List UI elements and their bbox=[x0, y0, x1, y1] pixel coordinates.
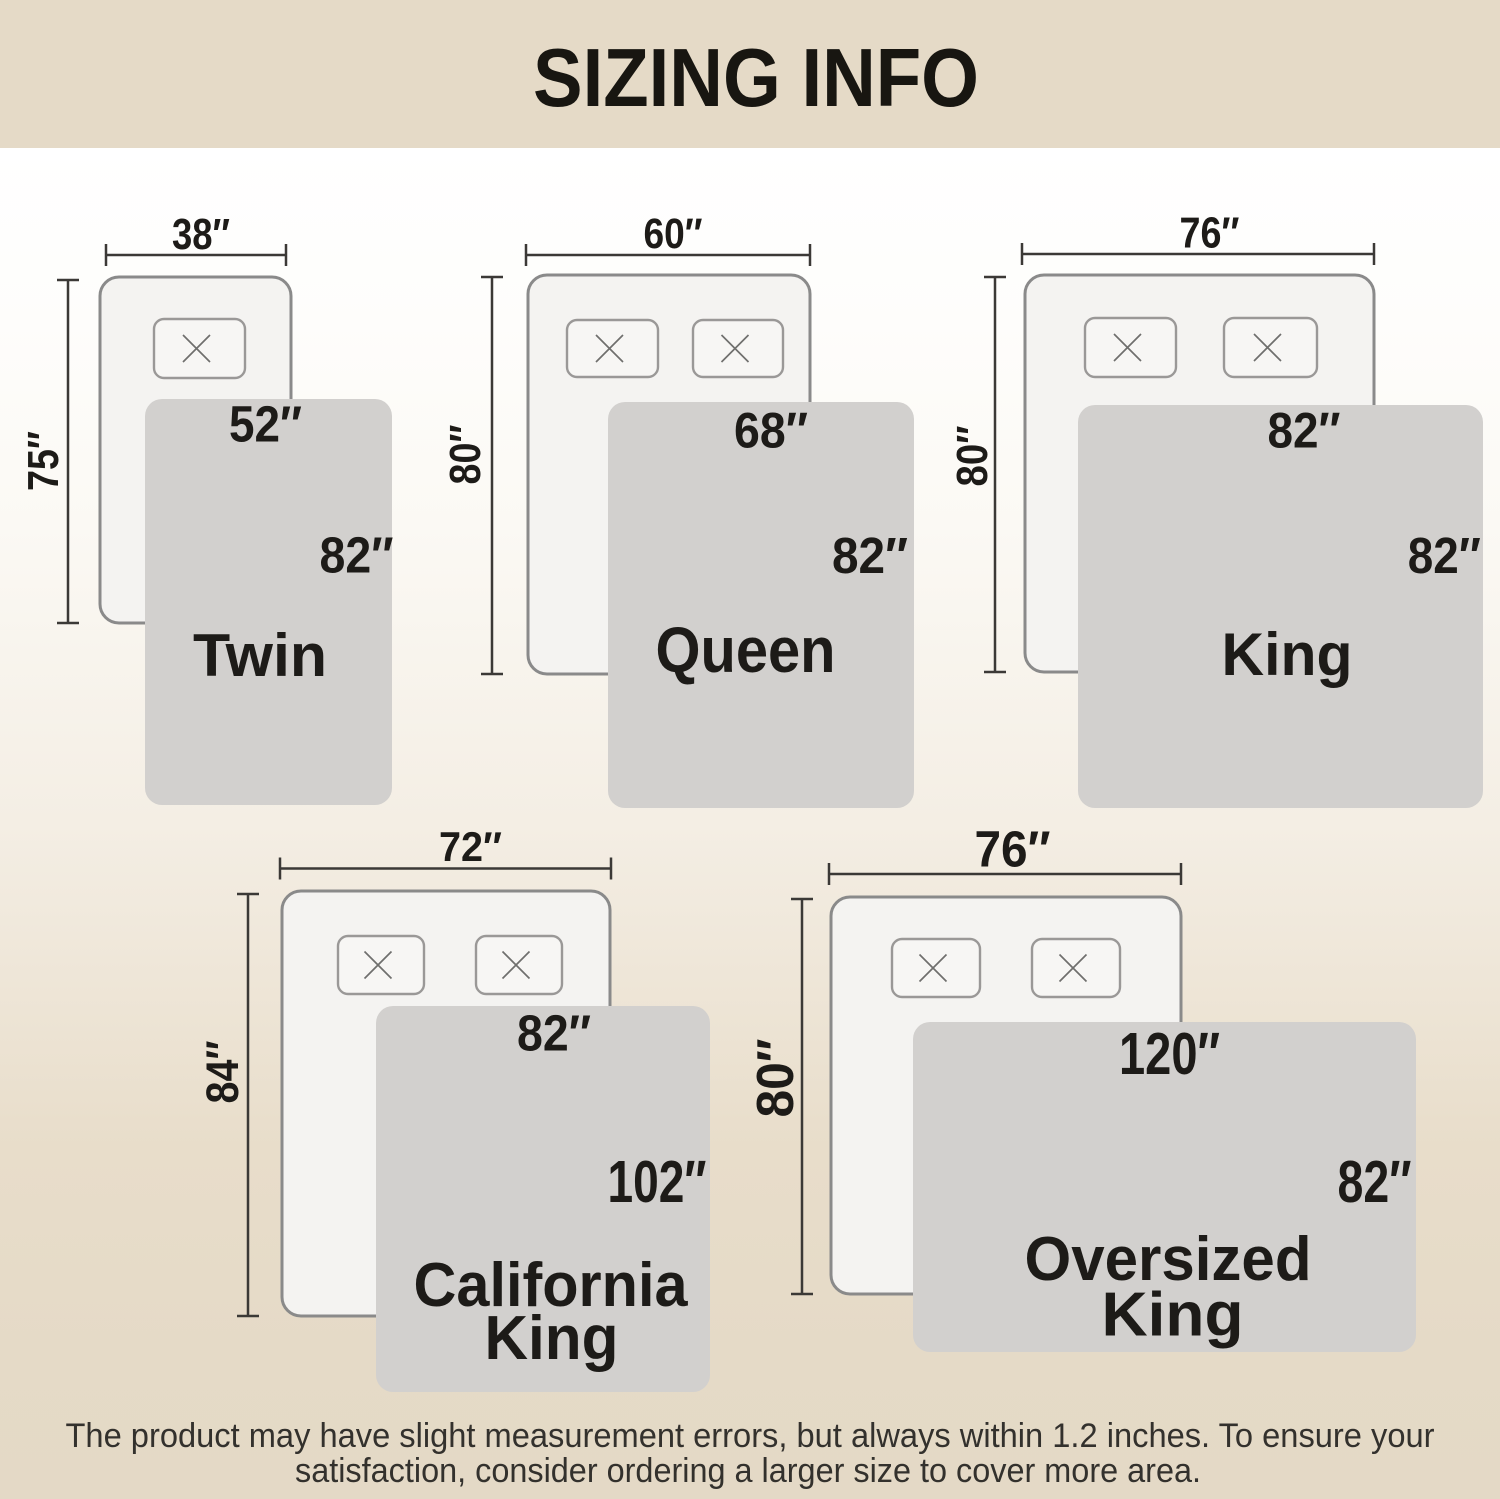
svg-text:68″: 68″ bbox=[734, 403, 808, 459]
svg-text:102″: 102″ bbox=[608, 1149, 707, 1215]
svg-text:80″: 80″ bbox=[441, 425, 490, 485]
svg-text:76″: 76″ bbox=[1180, 209, 1240, 258]
svg-text:SIZING INFO: SIZING INFO bbox=[533, 31, 979, 124]
svg-text:80″: 80″ bbox=[948, 426, 997, 487]
svg-text:80″: 80″ bbox=[747, 1039, 805, 1118]
svg-text:76″: 76″ bbox=[975, 821, 1051, 878]
svg-text:38″: 38″ bbox=[172, 210, 230, 259]
svg-text:82″: 82″ bbox=[832, 527, 908, 584]
svg-text:60″: 60″ bbox=[644, 210, 703, 258]
svg-text:satisfaction, consider orderin: satisfaction, consider ordering a larger… bbox=[295, 1452, 1201, 1490]
svg-text:82″: 82″ bbox=[1338, 1149, 1412, 1215]
svg-text:Queen: Queen bbox=[656, 614, 836, 686]
svg-text:82″: 82″ bbox=[1268, 403, 1341, 459]
svg-text:King: King bbox=[1102, 1281, 1244, 1350]
svg-text:King: King bbox=[485, 1304, 619, 1373]
svg-text:52″: 52″ bbox=[229, 396, 302, 453]
svg-text:120″: 120″ bbox=[1119, 1021, 1220, 1087]
svg-text:84″: 84″ bbox=[197, 1041, 248, 1104]
svg-text:82″: 82″ bbox=[517, 1005, 591, 1062]
svg-text:The product may have slight me: The product may have slight measurement … bbox=[66, 1417, 1435, 1455]
svg-text:82″: 82″ bbox=[320, 527, 394, 584]
svg-text:King: King bbox=[1222, 621, 1353, 688]
svg-text:82″: 82″ bbox=[1408, 527, 1481, 584]
svg-text:Twin: Twin bbox=[193, 622, 327, 689]
svg-text:75″: 75″ bbox=[19, 431, 68, 491]
svg-text:72″: 72″ bbox=[439, 823, 502, 870]
